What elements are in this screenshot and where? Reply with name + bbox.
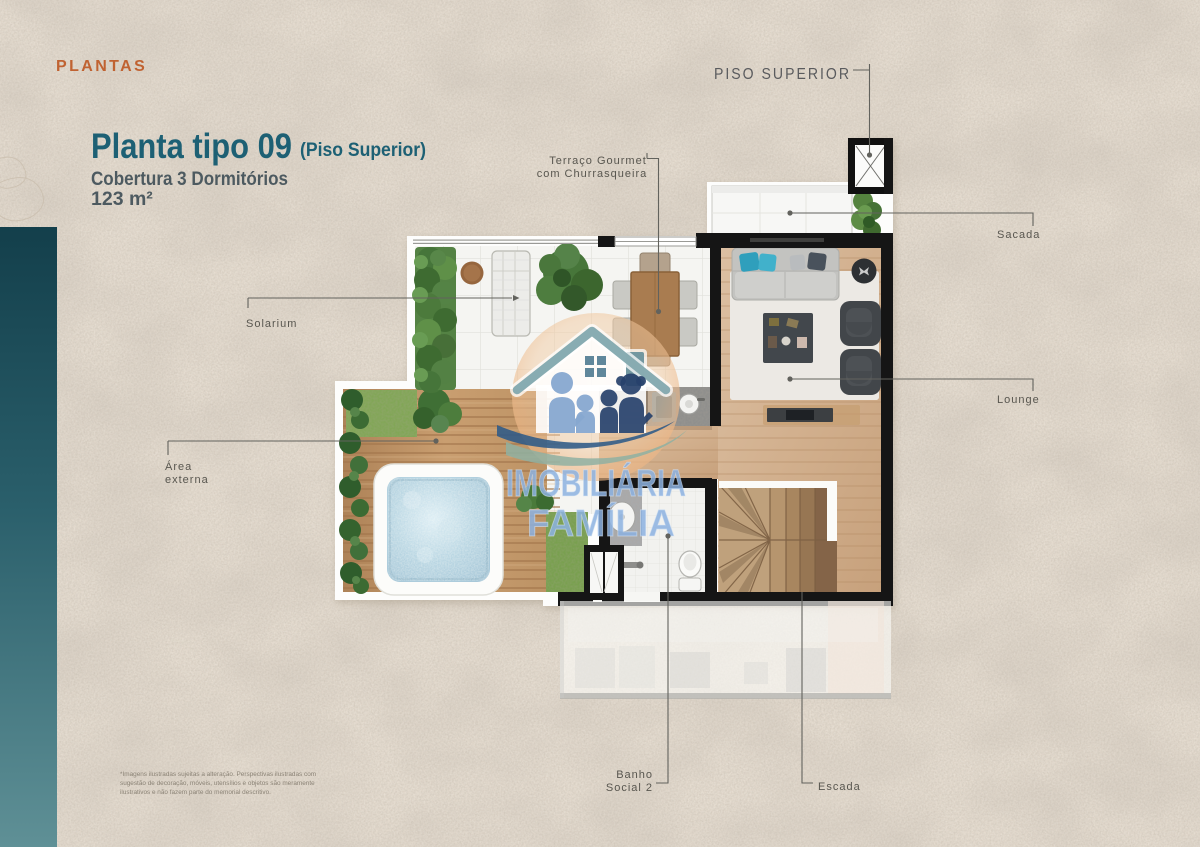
svg-text:Social 2: Social 2 — [606, 782, 653, 794]
svg-text:PISO SUPERIOR: PISO SUPERIOR — [714, 66, 851, 83]
svg-text:123 m²: 123 m² — [91, 188, 153, 210]
svg-text:Planta tipo 09: Planta tipo 09 — [91, 127, 292, 166]
svg-text:Terraço Gourmet: Terraço Gourmet — [549, 155, 647, 167]
svg-text:IMOBILIÁRIA: IMOBILIÁRIA — [506, 461, 686, 505]
svg-text:Escada: Escada — [818, 781, 861, 793]
svg-text:externa: externa — [165, 474, 209, 486]
svg-text:FAMÍLIA: FAMÍLIA — [527, 501, 675, 545]
svg-text:Banho: Banho — [616, 769, 653, 781]
svg-text:(Piso Superior): (Piso Superior) — [300, 140, 426, 161]
svg-text:Cobertura 3 Dormitórios: Cobertura 3 Dormitórios — [91, 168, 288, 190]
svg-text:*Imagens ilustradas sujeitas a: *Imagens ilustradas sujeitas a alteração… — [120, 771, 316, 778]
svg-text:com Churrasqueira: com Churrasqueira — [537, 168, 648, 180]
svg-text:PLANTAS: PLANTAS — [56, 58, 147, 75]
svg-text:sugestão de decoração, móveis,: sugestão de decoração, móveis, utensílio… — [120, 780, 315, 787]
svg-text:Lounge: Lounge — [997, 394, 1040, 406]
svg-text:Área: Área — [165, 460, 192, 473]
svg-text:Sacada: Sacada — [997, 229, 1040, 241]
svg-text:ilustrativos e não fazem parte: ilustrativos e não fazem parte do memori… — [120, 789, 271, 796]
svg-text:Solarium: Solarium — [246, 318, 297, 330]
